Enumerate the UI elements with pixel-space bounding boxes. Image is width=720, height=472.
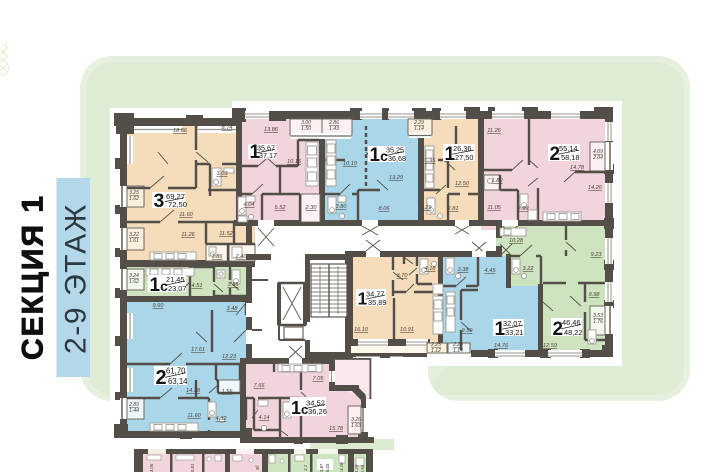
svg-text:7.66: 7.66 [254,383,266,389]
svg-text:16.10: 16.10 [354,327,369,333]
svg-text:3.85: 3.85 [228,282,240,288]
svg-text:58,18: 58,18 [561,153,580,162]
svg-text:2-9 ЭТАЖ: 2-9 ЭТАЖ [60,203,93,354]
svg-text:3.80: 3.80 [336,204,348,210]
svg-text:10.91: 10.91 [400,327,414,333]
svg-text:13.18: 13.18 [339,462,344,472]
svg-text:3.29: 3.29 [354,464,359,472]
svg-text:1.50: 1.50 [301,126,311,132]
svg-text:12.59: 12.59 [543,343,557,349]
svg-text:7.05: 7.05 [313,376,325,382]
svg-text:2.04: 2.04 [592,155,603,161]
svg-text:3б: 3б [255,465,260,470]
svg-text:2: 2 [156,367,167,389]
svg-text:21,45: 21,45 [166,275,185,284]
svg-text:9.59: 9.59 [462,328,473,334]
svg-text:23,87: 23,87 [319,463,324,472]
svg-text:4.45: 4.45 [485,268,497,274]
svg-text:1.44: 1.44 [129,408,139,414]
svg-text:1.86: 1.86 [212,254,224,260]
svg-text:23,07: 23,07 [168,284,187,293]
svg-text:27,50: 27,50 [455,153,474,162]
svg-text:13.86: 13.86 [264,127,279,133]
svg-text:3: 3 [154,190,165,212]
svg-text:1.64: 1.64 [360,464,365,472]
svg-text:4.51: 4.51 [192,283,203,289]
svg-text:4.32: 4.32 [216,416,228,422]
svg-text:15.78: 15.78 [329,426,344,432]
svg-text:2,1: 2,1 [303,464,308,472]
svg-text:1.43: 1.43 [329,126,339,132]
svg-text:3.70: 3.70 [397,273,409,279]
svg-text:13.29: 13.29 [389,175,403,181]
svg-text:36,68: 36,68 [388,154,406,163]
svg-text:2.81: 2.81 [447,206,459,212]
svg-text:48,22: 48,22 [564,328,583,337]
svg-text:11.60: 11.60 [187,413,201,419]
svg-text:10.28: 10.28 [509,238,524,244]
svg-text:3.22: 3.22 [523,266,535,272]
svg-text:33,21: 33,21 [505,328,524,337]
svg-text:1.14: 1.14 [453,348,463,354]
svg-text:61,70: 61,70 [166,366,186,375]
svg-text:17.61: 17.61 [191,347,205,353]
svg-text:26,36: 26,36 [453,144,472,153]
svg-text:14.26: 14.26 [588,185,603,191]
svg-text:8.06: 8.06 [379,206,391,212]
svg-text:9.98: 9.98 [589,292,601,298]
svg-text:4.14: 4.14 [259,415,270,421]
svg-text:11.52: 11.52 [219,231,233,237]
svg-text:0.81: 0.81 [190,463,195,472]
svg-text:9.23: 9.23 [591,252,603,258]
svg-text:10.15: 10.15 [287,159,302,165]
svg-text:37,17: 37,17 [259,151,277,160]
svg-text:3.03: 3.03 [217,171,229,177]
svg-text:11.05: 11.05 [487,205,501,211]
svg-text:1.80: 1.80 [492,178,504,184]
svg-text:12.23: 12.23 [222,354,237,360]
svg-text:1.14: 1.14 [414,126,424,132]
svg-text:6.96: 6.96 [425,158,437,164]
svg-text:55,14: 55,14 [559,144,578,153]
svg-text:8.74: 8.74 [222,125,233,131]
svg-text:1.56: 1.56 [222,389,234,395]
svg-text:1.61: 1.61 [129,238,139,244]
svg-text:14.78: 14.78 [570,165,585,171]
svg-text:63,14: 63,14 [168,377,188,386]
svg-text:2.40: 2.40 [235,254,248,260]
svg-text:3.48: 3.48 [227,306,239,312]
svg-text:1.62: 1.62 [129,196,139,202]
svg-text:5.52: 5.52 [275,205,287,211]
svg-text:4.18: 4.18 [425,266,437,272]
svg-text:1.12: 1.12 [431,348,441,354]
svg-text:18.86: 18.86 [173,128,188,134]
svg-text:4.29: 4.29 [421,205,432,211]
svg-text:2.30: 2.30 [305,205,318,211]
svg-text:14.38: 14.38 [186,388,201,394]
svg-text:36,26: 36,26 [308,407,327,416]
svg-text:35,89: 35,89 [368,298,387,307]
svg-text:72,50: 72,50 [168,200,187,209]
svg-text:14.76: 14.76 [494,343,509,349]
svg-text:1.76: 1.76 [593,319,603,325]
svg-text:3.38: 3.38 [458,267,470,273]
svg-text:12.50: 12.50 [455,181,470,187]
svg-text:4.04: 4.04 [244,202,255,208]
svg-text:10.10: 10.10 [343,161,358,167]
svg-text:11.26: 11.26 [487,128,501,134]
svg-text:25,03: 25,03 [325,463,330,472]
svg-text:9.60: 9.60 [153,303,165,309]
svg-text:2.99: 2.99 [517,206,529,212]
svg-text:11.60: 11.60 [179,212,193,218]
svg-text:СЕКЦИЯ 1: СЕКЦИЯ 1 [17,194,50,360]
svg-text:1.62: 1.62 [129,279,139,285]
svg-text:11.26: 11.26 [181,232,195,238]
svg-text:3.06: 3.06 [149,463,154,472]
svg-text:1.63: 1.63 [351,423,361,429]
svg-text:32,07: 32,07 [503,319,522,328]
